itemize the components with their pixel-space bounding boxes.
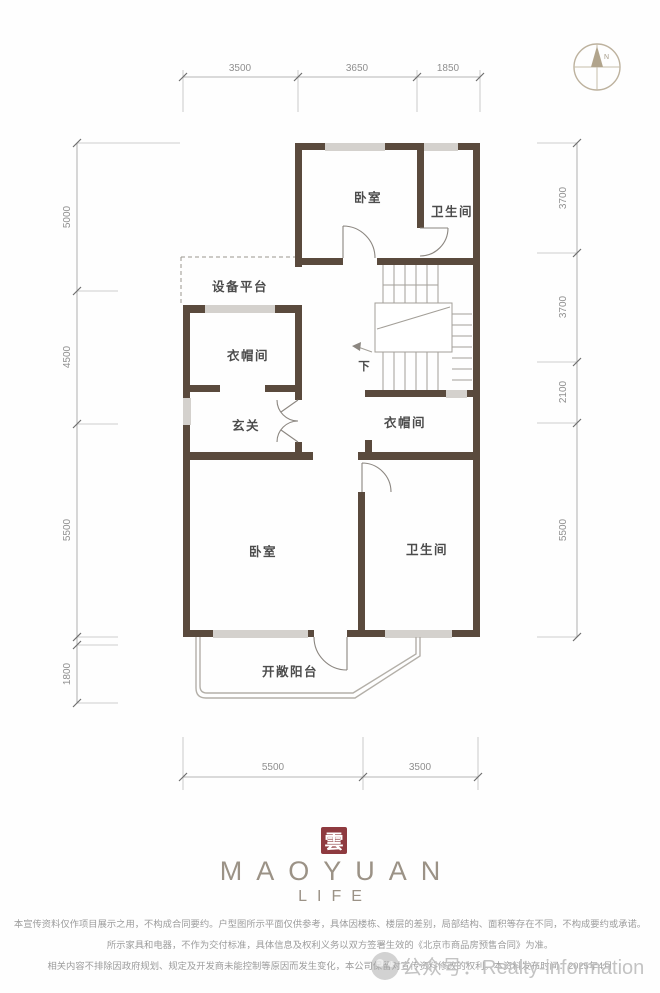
dim-top-3: 1850 [437, 63, 460, 74]
stairs-upper-flight [383, 265, 438, 303]
disclaimer-line-1: 本宣传资料仅作项目展示之用，不构成合同要约。户型图所示平面仅供参考，具体因楼栋、… [14, 918, 646, 929]
room-bedroom-lower: 卧室 [249, 544, 277, 559]
compass-needle [591, 46, 603, 67]
logo-sub-name: LIFE [298, 888, 372, 905]
dim-left-3: 5500 [62, 518, 73, 541]
compass-icon: N [574, 44, 620, 90]
window-bedroom-lower [213, 631, 308, 637]
window-left-wall [184, 398, 190, 425]
window-equipment [205, 306, 275, 312]
dim-left-1: 5000 [62, 205, 73, 228]
logo-seal-character: 雲 [324, 831, 343, 853]
dim-ticks [73, 73, 581, 781]
window-bathroom-top [424, 144, 458, 150]
room-bedroom-top: 卧室 [354, 190, 382, 205]
window-stair [446, 391, 467, 397]
door-balcony [314, 637, 347, 670]
dim-bottom-2: 3500 [409, 762, 432, 773]
room-cloakroom-right: 衣帽间 [384, 415, 426, 430]
window-bathroom-lower [385, 631, 452, 637]
dim-ext-bottom [183, 737, 478, 790]
room-bathroom-top: 卫生间 [431, 204, 473, 219]
disclaimer-line-2: 所示家具和电器，不作为交付标准，具体信息及权利义务以双方签署生效的《北京市商品房… [107, 939, 553, 950]
brand-logo: 雲 MAOYUAN LIFE [220, 827, 455, 905]
dim-bottom-1: 5500 [262, 762, 285, 773]
room-balcony: 开敞阳台 [262, 664, 318, 679]
stairs-down-arrowhead [352, 342, 361, 351]
logo-brand-name: MAOYUAN [220, 856, 455, 886]
dim-left-4: 1800 [62, 662, 73, 685]
dim-right-1: 3700 [558, 186, 569, 209]
stairs-lower-flight [383, 352, 438, 390]
room-foyer: 玄关 [232, 418, 260, 433]
door-bathroom-top [420, 228, 448, 256]
watermark: 公众号：Realty-information [371, 952, 644, 980]
watermark-icon [371, 952, 399, 980]
room-cloakroom-left: 衣帽间 [227, 348, 269, 363]
stairs-right-flight [452, 314, 472, 380]
dim-right-3: 2100 [558, 380, 569, 403]
room-equipment-platform: 设备平台 [212, 279, 268, 294]
door-cloakroom-right [362, 463, 391, 492]
dim-ext-right [537, 143, 577, 637]
watermark-text: 公众号：Realty-information [402, 956, 644, 979]
door-foyer-double [277, 400, 298, 442]
dim-ext-left [77, 143, 180, 703]
dim-ext-top [183, 70, 480, 112]
dim-right-2: 3700 [558, 295, 569, 318]
room-stairs-down: 下 [358, 360, 370, 373]
dim-right-4: 5500 [558, 518, 569, 541]
floorplan-drawing: 3500 3650 1850 5000 4500 5500 1800 3700 … [0, 0, 660, 993]
compass-north-label: N [604, 54, 609, 61]
dim-top-1: 3500 [229, 63, 252, 74]
dimension-lines [73, 70, 581, 790]
window-bedroom-top [325, 144, 385, 150]
watermark-icon-dot-2 [388, 961, 394, 967]
dim-top-2: 3650 [346, 63, 369, 74]
dim-left-2: 4500 [62, 345, 73, 368]
room-bathroom-lower: 卫生间 [406, 542, 448, 557]
stairs [352, 265, 472, 390]
watermark-icon-dot-1 [376, 959, 384, 967]
floorplan-page: 3500 3650 1850 5000 4500 5500 1800 3700 … [0, 0, 660, 993]
door-bedroom-top [343, 226, 375, 258]
